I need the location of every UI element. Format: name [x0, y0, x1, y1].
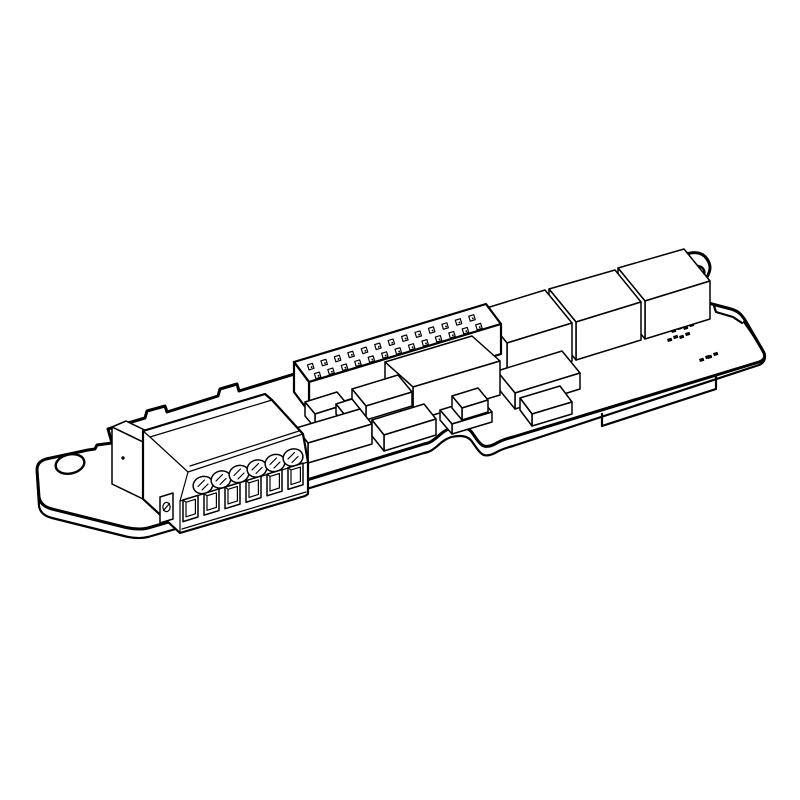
- illustration-stage: Isometric line drawing of a plug-in PCB …: [0, 0, 800, 800]
- wire-opening: [204, 489, 219, 515]
- wire-opening: [267, 470, 282, 496]
- pcb-card-line-drawing: [0, 0, 800, 800]
- wire-opening: [288, 463, 303, 489]
- terminal-side-latch: [160, 493, 173, 523]
- wire-opening: [246, 476, 261, 502]
- end-plate-dot: [121, 456, 124, 459]
- wire-opening: [225, 483, 240, 509]
- wire-opening: [183, 495, 198, 521]
